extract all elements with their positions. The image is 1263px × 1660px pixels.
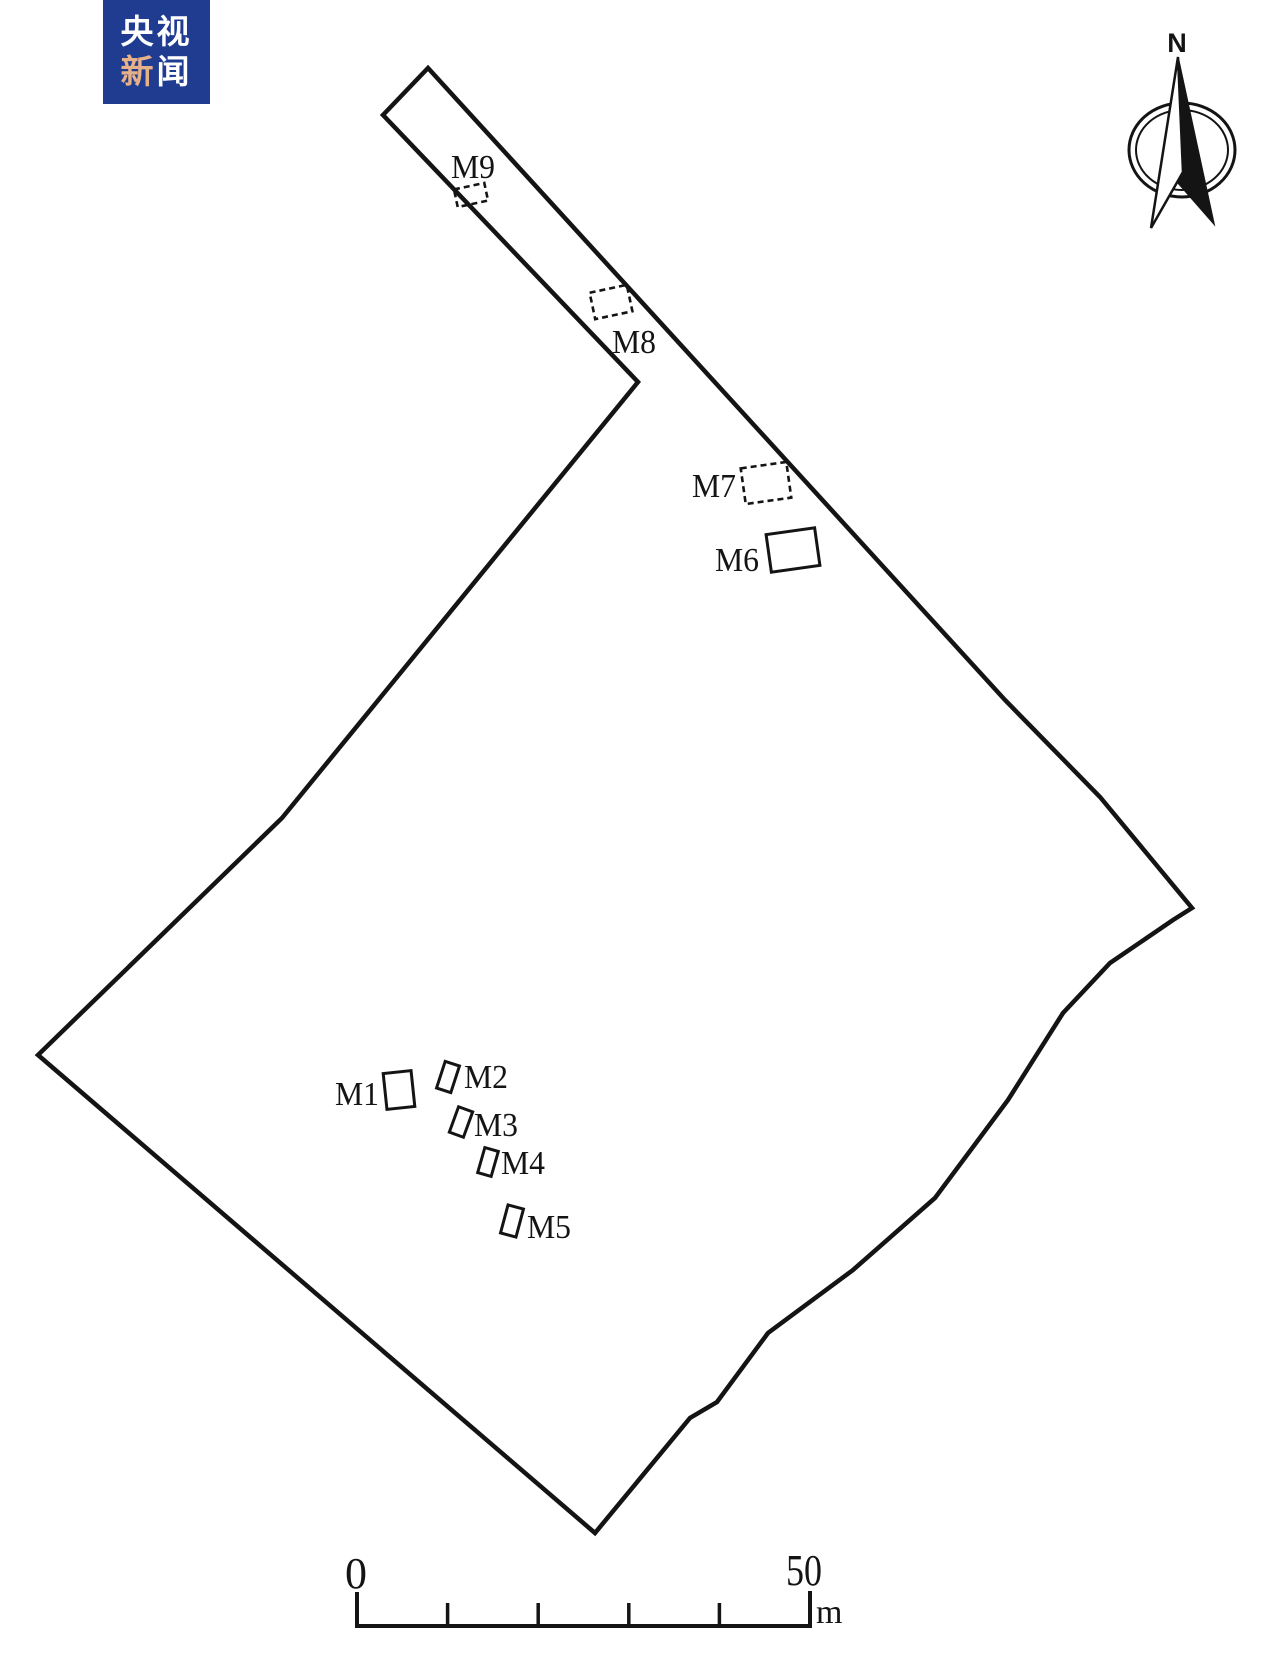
tomb-marker-M1 [383,1071,415,1110]
tomb-marker-M3 [449,1107,472,1138]
tomb-label-M7: M7 [692,468,736,505]
compass-needle-white-blade-icon [1151,57,1183,228]
tomb-markers-layer: M9M8M7M6M1M2M3M4M5 [335,149,820,1246]
tomb-marker-M8 [590,285,633,319]
scale-bar: 0 50 m [345,1546,842,1631]
tomb-label-M2: M2 [464,1059,508,1096]
tomb-label-M1: M1 [335,1076,379,1113]
tomb-marker-M6 [766,528,820,572]
tomb-marker-M2 [437,1061,460,1092]
figure-canvas: 央视 新闻 M9M8M7M6M1M2M3M4M5 N 0 50 m [0,0,1263,1660]
scale-start-label: 0 [345,1549,367,1598]
tomb-label-M3: M3 [474,1107,518,1144]
tomb-label-M6: M6 [715,542,759,579]
compass-north-label: N [1167,28,1187,58]
tomb-label-M5: M5 [527,1209,571,1246]
scale-bar-inner-ticks [448,1603,720,1626]
tomb-label-M4: M4 [501,1145,545,1182]
tomb-label-M9: M9 [451,149,495,186]
tomb-marker-M4 [478,1148,499,1177]
tomb-marker-M7 [741,462,792,504]
north-arrow-compass: N [1129,28,1235,228]
scale-end-label: 50 [786,1546,822,1595]
site-plan-drawing: M9M8M7M6M1M2M3M4M5 N 0 50 m [0,0,1263,1660]
tomb-marker-M5 [501,1205,524,1237]
tomb-label-M8: M8 [612,324,656,361]
scale-unit-label: m [816,1594,842,1631]
